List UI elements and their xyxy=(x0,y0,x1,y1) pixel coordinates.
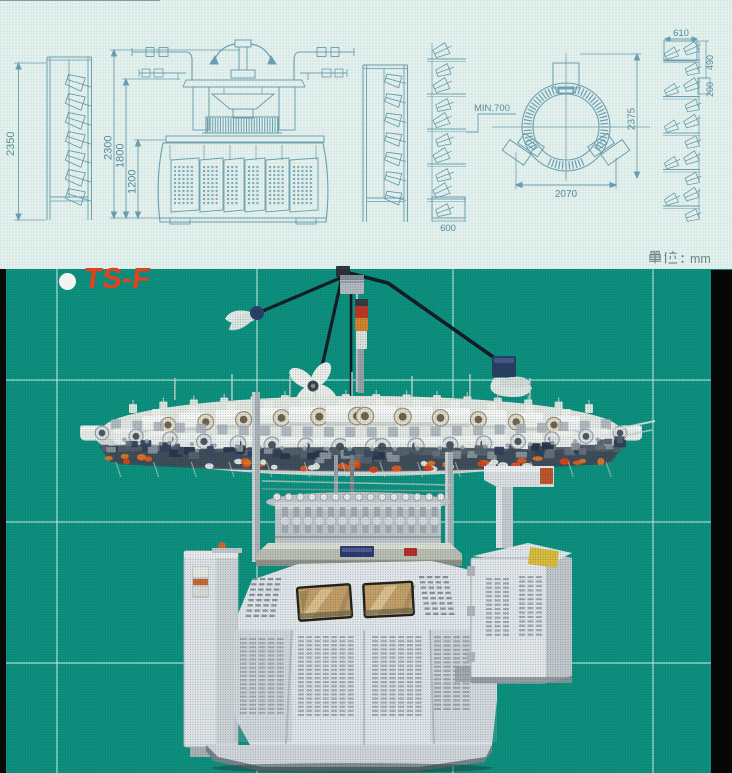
svg-text:mm: mm xyxy=(690,252,711,266)
